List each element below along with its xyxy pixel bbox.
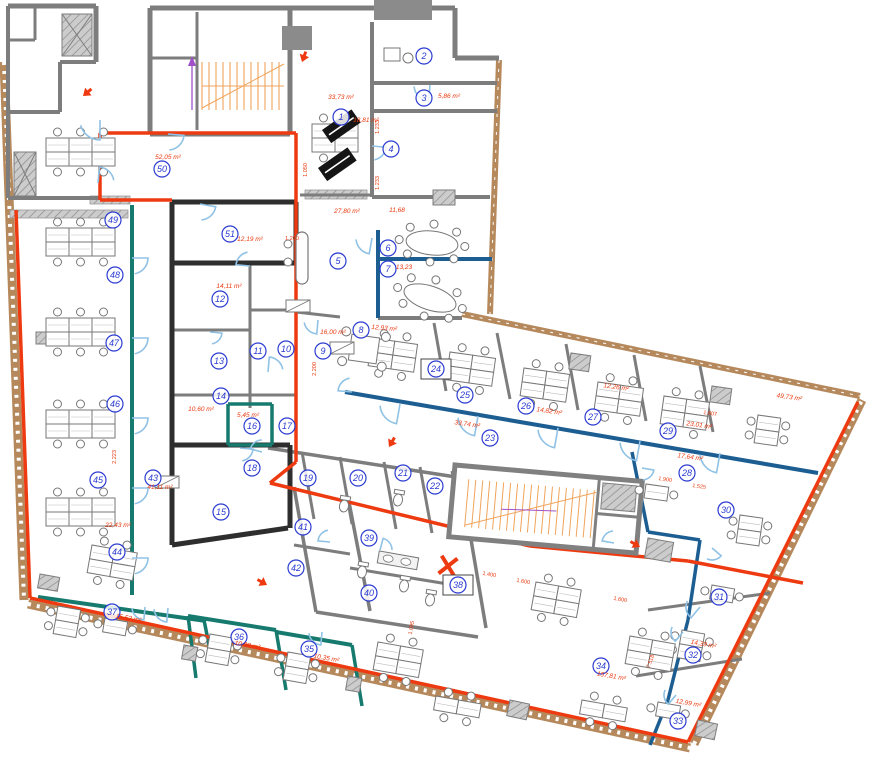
dimension-label-4: 2.200	[312, 362, 318, 376]
room-area-label-44: 22,43 m²	[104, 522, 131, 529]
dimension-label-1: 1.233	[375, 120, 381, 134]
room-badge-48: 48	[107, 267, 123, 283]
room-badge-47: 47	[106, 335, 122, 351]
room-badge-2: 2	[416, 48, 432, 64]
room-badge-31: 31	[711, 589, 727, 605]
svg-text:22: 22	[429, 481, 440, 491]
room-area-label-9: 16,00 m²	[320, 329, 346, 336]
dimension-label-3: 1.200	[285, 236, 299, 242]
svg-text:15: 15	[216, 507, 227, 517]
svg-text:32: 32	[688, 650, 698, 660]
svg-text:18: 18	[247, 463, 257, 473]
svg-text:27: 27	[587, 412, 599, 422]
svg-text:43: 43	[148, 473, 158, 483]
room-badge-22: 22	[427, 478, 443, 494]
svg-text:17: 17	[282, 421, 293, 431]
svg-text:41: 41	[298, 522, 308, 532]
room-area-label-50: 52,05 m²	[155, 154, 181, 161]
room-area-label-16: 5,45 m²	[237, 412, 260, 419]
svg-text:49: 49	[108, 215, 118, 225]
floor-plan-sheet: 133,73 m²235,86 m²418,81 m²527,80 m²611,…	[0, 0, 874, 768]
room-badge-42: 42	[288, 560, 304, 576]
room-area-label-3: 5,86 m²	[438, 93, 461, 100]
room-area-label-12: 14,11 m²	[216, 283, 242, 290]
room-badge-45: 45	[90, 472, 106, 488]
svg-text:30: 30	[721, 505, 731, 515]
svg-text:24: 24	[430, 364, 441, 374]
svg-text:45: 45	[93, 475, 104, 485]
svg-text:51: 51	[225, 229, 235, 239]
room-badge-41: 41	[295, 519, 311, 535]
room-badge-11: 11	[250, 343, 266, 359]
svg-text:26: 26	[520, 401, 531, 411]
room-area-label-1: 33,73 m²	[328, 94, 354, 101]
svg-text:39: 39	[364, 533, 374, 543]
svg-text:46: 46	[110, 399, 120, 409]
room-area-label-51: 12,19 m²	[237, 236, 263, 243]
room-badge-18: 18	[244, 460, 260, 476]
svg-text:28: 28	[681, 468, 692, 478]
floor-plan-canvas: 133,73 m²235,86 m²418,81 m²527,80 m²611,…	[0, 0, 874, 768]
svg-text:31: 31	[714, 592, 724, 602]
room-badge-14: 14	[213, 388, 229, 404]
dimension-label-5: 2.223	[112, 450, 118, 464]
svg-text:42: 42	[291, 563, 301, 573]
svg-text:3: 3	[421, 93, 426, 103]
room-badge-24: 24	[421, 359, 451, 379]
room-badge-10: 10	[278, 341, 294, 357]
dimension-label-0: 1.050	[303, 163, 309, 177]
svg-text:38: 38	[453, 580, 463, 590]
room-badge-13: 13	[211, 353, 227, 369]
svg-text:14: 14	[216, 391, 226, 401]
svg-text:12: 12	[215, 294, 225, 304]
svg-text:13: 13	[214, 356, 224, 366]
svg-text:47: 47	[109, 338, 120, 348]
svg-text:21: 21	[397, 468, 408, 478]
room-badge-20: 20	[350, 470, 366, 486]
room-badge-38: 38	[443, 575, 473, 595]
svg-text:9: 9	[320, 346, 325, 356]
room-area-label-6: 11,68	[389, 207, 405, 214]
open-area-label-1: 10,60 m²	[188, 406, 214, 413]
room-badge-49: 49	[105, 212, 121, 228]
svg-text:20: 20	[352, 473, 363, 483]
svg-text:23: 23	[484, 433, 495, 443]
room-badge-19: 19	[300, 470, 316, 486]
room-area-label-43: 41,11 m²	[147, 484, 173, 491]
svg-text:48: 48	[110, 270, 120, 280]
svg-text:33: 33	[673, 716, 683, 726]
stair-core-central	[449, 465, 643, 553]
room-badge-40: 40	[361, 585, 377, 601]
room-badge-39: 39	[361, 530, 377, 546]
svg-text:16: 16	[247, 421, 257, 431]
dimension-label-2: 1.233	[375, 176, 381, 190]
room-badge-46: 46	[107, 396, 123, 412]
svg-text:29: 29	[662, 426, 673, 436]
svg-text:44: 44	[112, 547, 122, 557]
room-area-label-5: 27,80 m²	[333, 208, 360, 215]
svg-text:10: 10	[281, 344, 291, 354]
svg-text:11: 11	[253, 346, 262, 356]
svg-text:6: 6	[385, 243, 390, 253]
room-badge-25: 25	[457, 387, 473, 403]
svg-text:19: 19	[303, 473, 313, 483]
room-area-label-7: 13,23	[396, 264, 413, 271]
svg-text:40: 40	[364, 588, 374, 598]
svg-text:4: 4	[388, 144, 393, 154]
svg-text:8: 8	[358, 325, 363, 335]
svg-text:34: 34	[596, 661, 606, 671]
svg-text:25: 25	[459, 390, 471, 400]
svg-text:1: 1	[338, 112, 343, 122]
room-badge-30: 30	[718, 502, 734, 518]
svg-text:50: 50	[157, 164, 167, 174]
room-badge-15: 15	[213, 504, 229, 520]
svg-text:2: 2	[420, 51, 426, 61]
room-badge-17: 17	[279, 418, 295, 434]
room-badge-21: 21	[395, 465, 411, 481]
